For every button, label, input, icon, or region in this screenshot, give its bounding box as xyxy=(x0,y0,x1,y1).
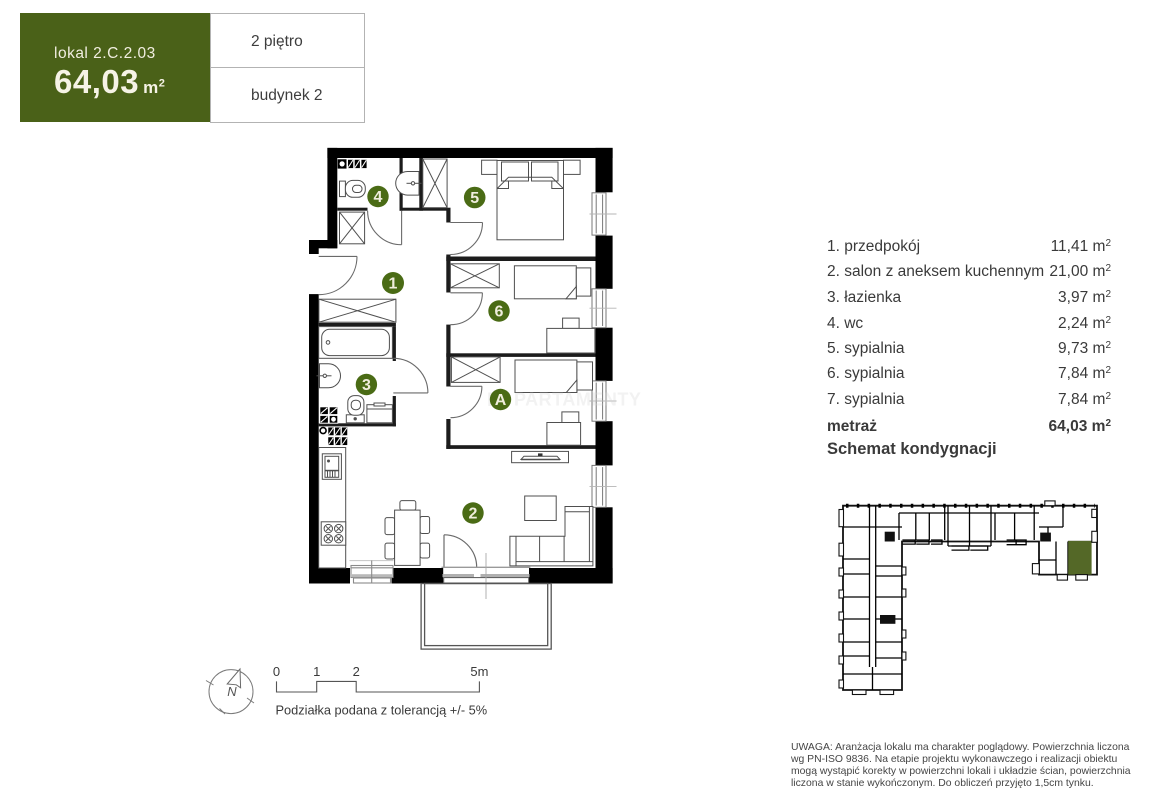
svg-text:5: 5 xyxy=(470,190,479,207)
svg-text:3: 3 xyxy=(362,377,371,394)
svg-text:5m: 5m xyxy=(470,664,488,679)
svg-text:A: A xyxy=(495,392,507,409)
svg-text:Podziałka podana z tolerancją: Podziałka podana z tolerancją +/- 5% xyxy=(276,703,488,718)
svg-text:6: 6 xyxy=(495,304,504,321)
svg-text:1: 1 xyxy=(389,276,398,293)
svg-text:PARTAMENTY: PARTAMENTY xyxy=(514,390,641,410)
svg-text:1: 1 xyxy=(313,664,320,679)
svg-text:N: N xyxy=(227,684,237,699)
svg-text:4: 4 xyxy=(374,189,383,206)
svg-text:2: 2 xyxy=(353,664,360,679)
svg-text:0: 0 xyxy=(273,664,280,679)
svg-text:2: 2 xyxy=(469,506,478,523)
